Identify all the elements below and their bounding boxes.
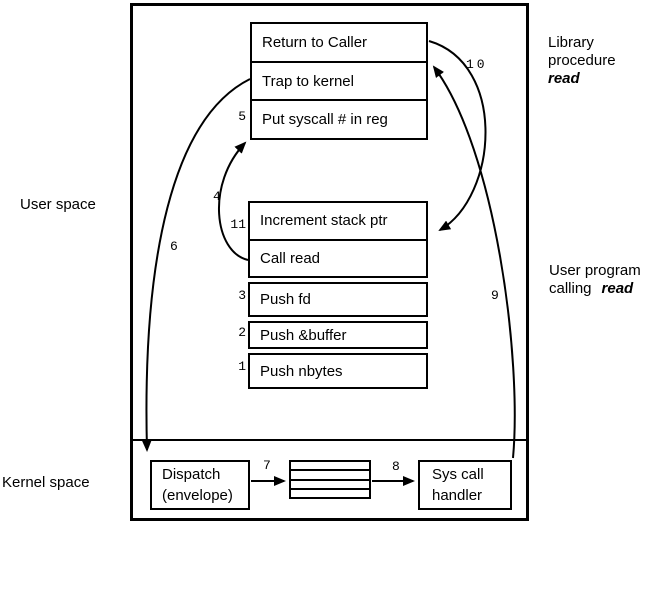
handler-label-line1: Sys call <box>432 464 510 485</box>
push-buffer-box: Push &buffer <box>248 321 428 349</box>
step-10-label: 10 <box>466 57 488 72</box>
push-fd-box: Push fd <box>248 282 428 317</box>
step-11-label: 11 <box>222 217 246 232</box>
handler-table-row <box>291 462 369 471</box>
step-2-label: 2 <box>222 325 246 340</box>
dispatch-label-line2: (envelope) <box>162 485 248 506</box>
user-space-label: User space <box>20 196 96 214</box>
userprog-row-call-read: Call read <box>250 241 426 277</box>
library-row-label: Return to Caller <box>262 34 367 51</box>
user-kernel-divider <box>130 439 529 441</box>
sys-call-handler-box: Sys call handler <box>418 460 512 510</box>
library-row-return-to-caller: Return to Caller <box>252 24 426 63</box>
step-6-label: 6 <box>170 239 178 254</box>
handler-table-row <box>291 481 369 490</box>
library-row-put-syscall-in-reg: Put syscall # in reg <box>252 101 426 138</box>
dispatch-box: Dispatch (envelope) <box>150 460 250 510</box>
handler-table-row <box>291 471 369 480</box>
userprog-row-label: Increment stack ptr <box>260 212 388 229</box>
kernel-space-label: Kernel space <box>2 474 90 492</box>
library-procedure-caption: Library procedure read <box>548 34 616 88</box>
step-5-label: 5 <box>222 109 246 124</box>
user-program-caption-line2: callingread <box>549 280 641 298</box>
step-7-label: 7 <box>263 458 271 473</box>
userprog-row-increment-stack-ptr: Increment stack ptr <box>250 203 426 241</box>
push-buffer-label: Push &buffer <box>260 327 346 344</box>
step-9-label: 9 <box>491 288 499 303</box>
user-program-caption: User program callingread <box>549 262 641 298</box>
library-row-trap-to-kernel: Trap to kernel <box>252 63 426 102</box>
handler-table-row <box>291 490 369 497</box>
handler-label-line2: handler <box>432 485 510 506</box>
library-caption-read: read <box>548 70 616 88</box>
library-row-label: Trap to kernel <box>262 73 354 90</box>
library-caption-line2: procedure <box>548 52 616 70</box>
userprog-row-label: Call read <box>260 250 320 267</box>
step-4-label: 4 <box>213 189 221 204</box>
dispatch-label-line1: Dispatch <box>162 464 248 485</box>
user-program-caption-calling: calling <box>549 280 592 297</box>
user-program-caption-read: read <box>602 280 634 297</box>
step-3-label: 3 <box>222 288 246 303</box>
library-row-label: Put syscall # in reg <box>262 111 388 128</box>
push-nbytes-box: Push nbytes <box>248 353 428 389</box>
library-caption-line1: Library <box>548 34 616 52</box>
library-procedure-box: Return to Caller Trap to kernel Put sysc… <box>250 22 428 140</box>
step-1-label: 1 <box>222 359 246 374</box>
push-fd-label: Push fd <box>260 291 311 308</box>
step-8-label: 8 <box>392 459 400 474</box>
push-nbytes-label: Push nbytes <box>260 363 343 380</box>
user-program-caption-line1: User program <box>549 262 641 280</box>
handler-table <box>289 460 371 499</box>
syscall-diagram: Return to Caller Trap to kernel Put sysc… <box>0 0 662 595</box>
user-program-box: Increment stack ptr Call read <box>248 201 428 278</box>
